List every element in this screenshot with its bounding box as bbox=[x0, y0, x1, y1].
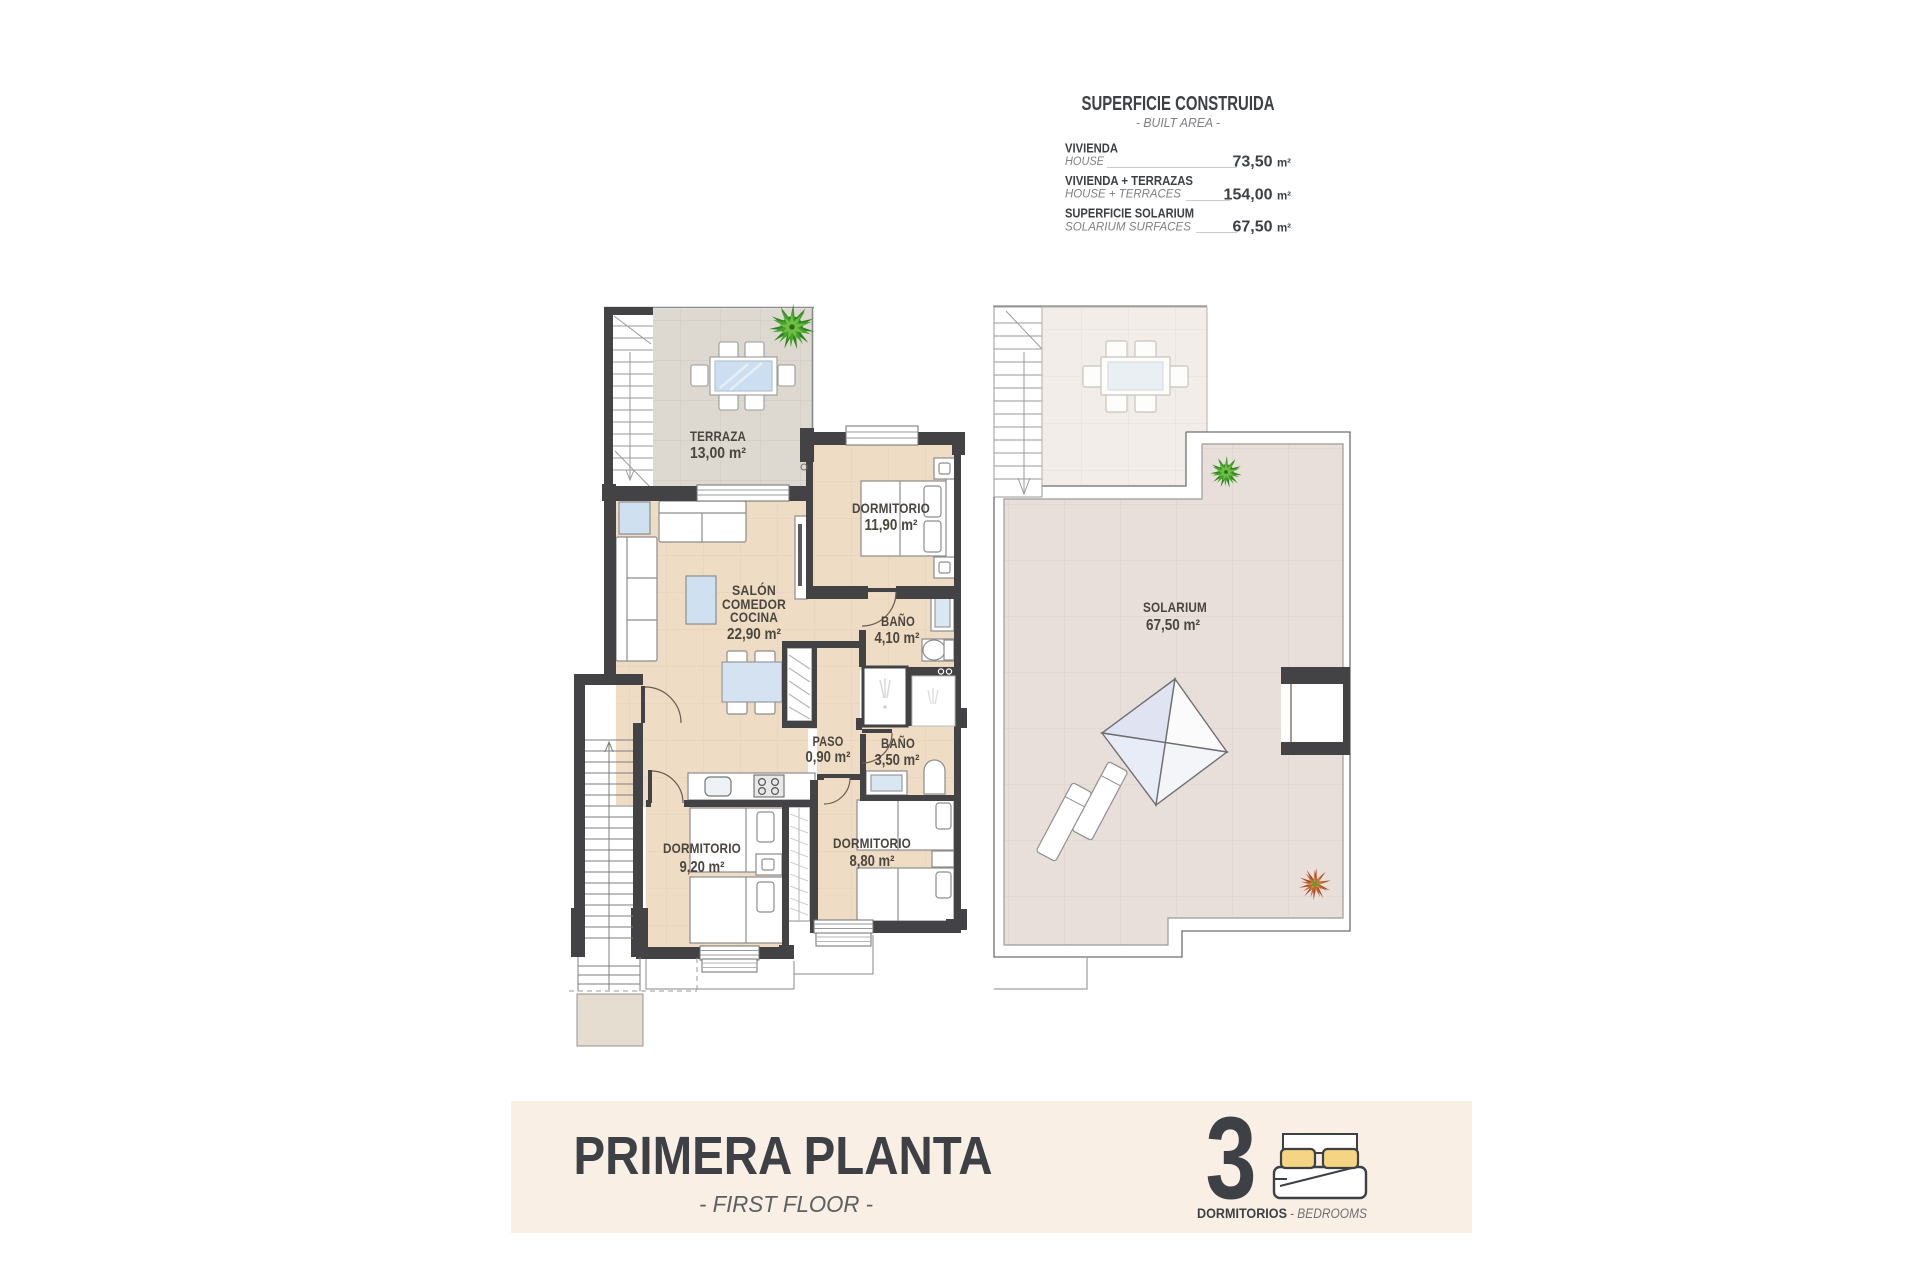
svg-text:- BEDROOMS: - BEDROOMS bbox=[1290, 1206, 1367, 1221]
svg-text:13,00 m²: 13,00 m² bbox=[690, 445, 746, 462]
svg-text:0,90 m²: 0,90 m² bbox=[806, 749, 851, 766]
svg-text:4,10 m²: 4,10 m² bbox=[875, 630, 920, 647]
svg-text:PASO: PASO bbox=[813, 733, 844, 749]
svg-text:BAÑO: BAÑO bbox=[881, 612, 915, 629]
svg-text:DORMITORIO: DORMITORIO bbox=[663, 840, 741, 856]
svg-text:3,50 m²: 3,50 m² bbox=[875, 752, 920, 769]
svg-text:SOLARIUM: SOLARIUM bbox=[1143, 599, 1207, 615]
svg-text:DORMITORIOS: DORMITORIOS bbox=[1197, 1206, 1287, 1221]
svg-text:HOUSE: HOUSE bbox=[1065, 156, 1104, 168]
svg-text:TERRAZA: TERRAZA bbox=[690, 428, 746, 444]
svg-text:SOLARIUM SURFACES: SOLARIUM SURFACES bbox=[1065, 222, 1191, 234]
svg-text:22,90 m²: 22,90 m² bbox=[727, 626, 781, 643]
svg-text:- BUILT AREA -: - BUILT AREA - bbox=[1136, 116, 1220, 130]
svg-text:COCINA: COCINA bbox=[730, 609, 778, 625]
svg-text:VIVIENDA + TERRAZAS: VIVIENDA + TERRAZAS bbox=[1065, 174, 1193, 188]
svg-text:SUPERFICIE CONSTRUIDA: SUPERFICIE CONSTRUIDA bbox=[1082, 93, 1275, 115]
svg-text:DORMITORIO: DORMITORIO bbox=[852, 500, 930, 516]
svg-text:11,90 m²: 11,90 m² bbox=[865, 517, 918, 534]
svg-text:PRIMERA PLANTA: PRIMERA PLANTA bbox=[574, 1126, 993, 1186]
svg-text:SUPERFICIE SOLARIUM: SUPERFICIE SOLARIUM bbox=[1065, 207, 1194, 221]
svg-text:- FIRST FLOOR -: - FIRST FLOOR - bbox=[699, 1191, 873, 1217]
svg-text:8,80 m²: 8,80 m² bbox=[850, 853, 895, 870]
svg-text:3: 3 bbox=[1206, 1092, 1257, 1223]
svg-text:BAÑO: BAÑO bbox=[881, 734, 915, 751]
svg-text:HOUSE + TERRACES: HOUSE + TERRACES bbox=[1065, 189, 1181, 201]
svg-text:9,20 m²: 9,20 m² bbox=[680, 859, 725, 876]
svg-text:VIVIENDA: VIVIENDA bbox=[1065, 142, 1118, 156]
svg-text:DORMITORIO: DORMITORIO bbox=[833, 835, 911, 851]
svg-text:67,50 m²: 67,50 m² bbox=[1146, 617, 1200, 634]
